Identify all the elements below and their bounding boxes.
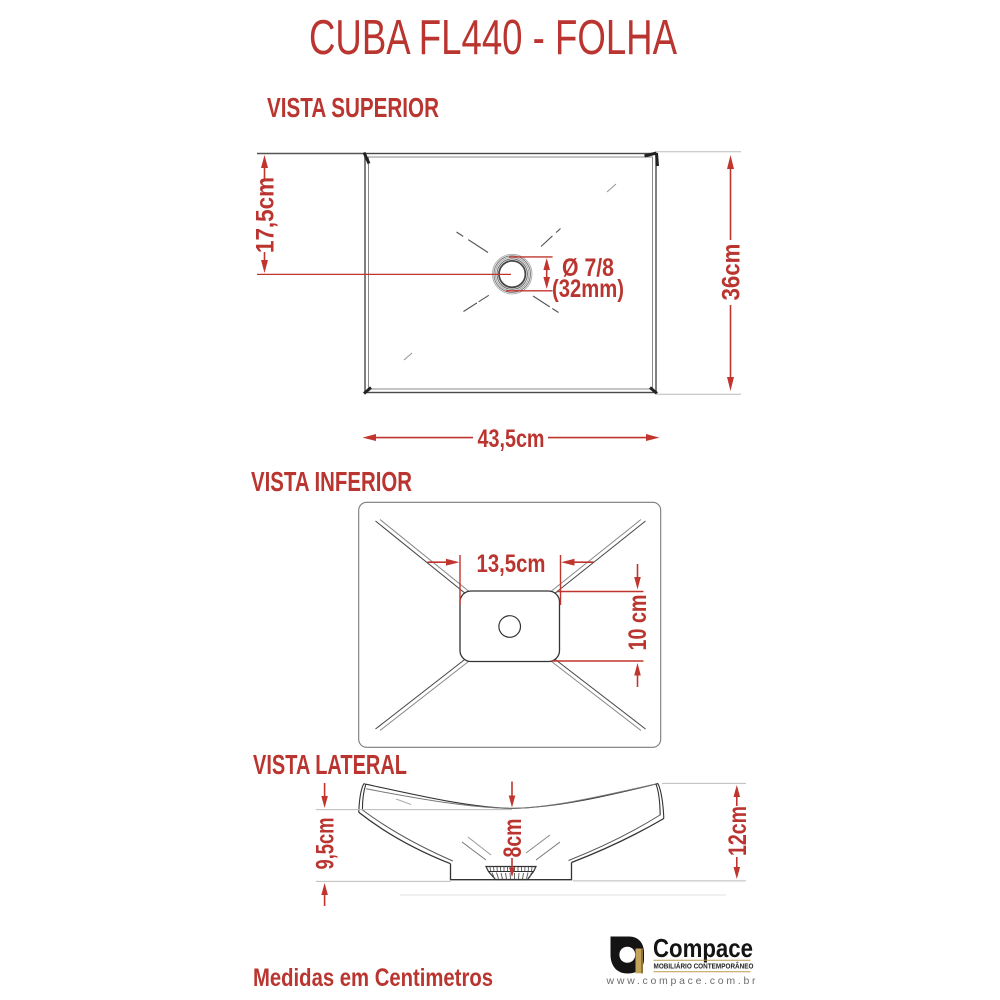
svg-text:VISTA INFERIOR: VISTA INFERIOR (251, 466, 412, 497)
svg-text:10 cm: 10 cm (624, 595, 652, 651)
svg-text:13,5cm: 13,5cm (477, 550, 546, 578)
svg-text:9,5cm: 9,5cm (312, 818, 340, 870)
svg-text:Medidas em Centimetros: Medidas em Centimetros (253, 964, 493, 992)
svg-text:43,5cm: 43,5cm (478, 425, 545, 453)
svg-text:VISTA SUPERIOR: VISTA SUPERIOR (267, 92, 439, 123)
svg-text:MOBILIÁRIO CONTEMPORÂNEO: MOBILIÁRIO CONTEMPORÂNEO (654, 961, 755, 970)
svg-text:VISTA LATERAL: VISTA LATERAL (253, 749, 407, 780)
svg-text:Compace: Compace (653, 933, 753, 963)
svg-text:8cm: 8cm (499, 819, 527, 858)
svg-text:(32mm): (32mm) (552, 275, 624, 303)
svg-text:www.compace.com.br: www.compace.com.br (606, 975, 757, 987)
svg-text:17,5cm: 17,5cm (252, 177, 280, 253)
svg-text:12cm: 12cm (724, 806, 752, 856)
svg-text:36cm: 36cm (718, 244, 746, 301)
svg-text:CUBA FL440 - FOLHA: CUBA FL440 - FOLHA (309, 11, 677, 65)
